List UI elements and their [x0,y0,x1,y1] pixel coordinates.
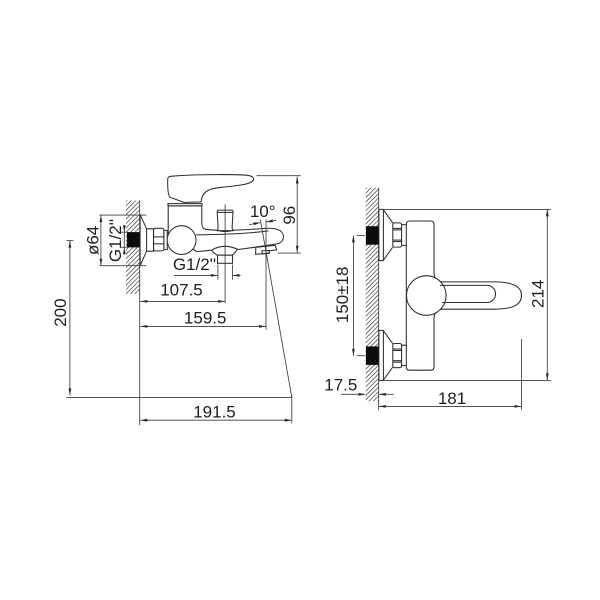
svg-text:107.5: 107.5 [160,280,203,299]
svg-text:17.5: 17.5 [324,376,357,395]
svg-text:150±18: 150±18 [333,266,352,323]
svg-text:96: 96 [280,206,299,225]
svg-text:214: 214 [528,280,547,308]
svg-text:10°: 10° [250,202,276,221]
svg-text:G1/2'': G1/2'' [173,255,216,274]
svg-text:159.5: 159.5 [184,308,227,327]
svg-text:ø64: ø64 [84,226,103,255]
svg-text:G1/2'': G1/2'' [106,219,125,262]
svg-text:181: 181 [438,389,466,408]
svg-text:191.5: 191.5 [193,402,236,421]
svg-text:200: 200 [51,298,70,326]
